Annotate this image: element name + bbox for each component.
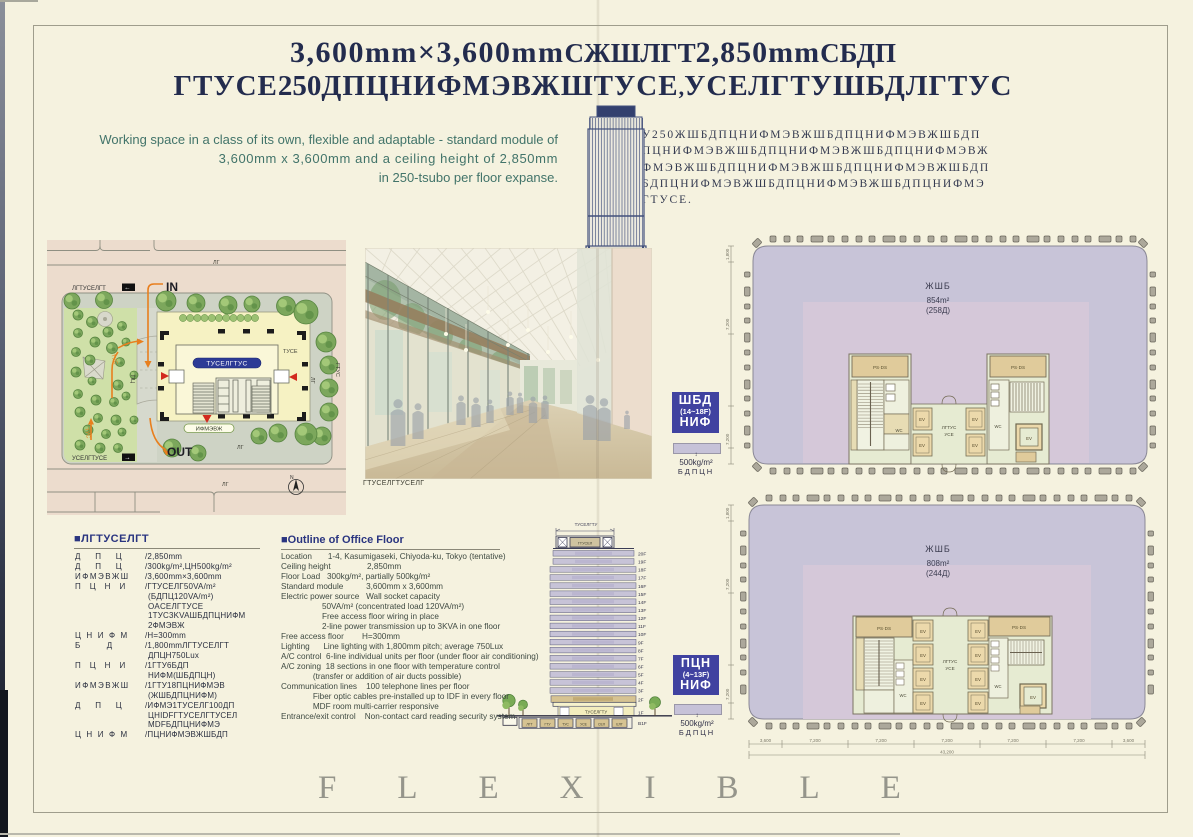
svg-text:PS·DS: PS·DS — [873, 365, 887, 370]
svg-text:EV: EV — [1026, 436, 1032, 441]
svg-text:ЛГТУС: ЛГТУС — [943, 659, 958, 664]
svg-text:→: → — [124, 455, 131, 462]
svg-text:ЛГТУСЕЛГТ: ЛГТУСЕЛГТ — [72, 286, 106, 292]
svg-text:ТУСЕЛГТУ: ТУСЕЛГТУ — [585, 709, 608, 714]
svg-text:УСЕ: УСЕ — [580, 722, 588, 726]
svg-text:6F: 6F — [638, 665, 644, 671]
svg-text:4F: 4F — [638, 681, 644, 687]
svg-text:EV: EV — [975, 653, 981, 658]
svg-text:11F: 11F — [638, 624, 646, 630]
svg-text:20F: 20F — [638, 552, 646, 558]
svg-text:ТУСЕ: ТУСЕ — [283, 349, 298, 355]
svg-text:EV: EV — [919, 443, 925, 448]
svg-text:ЛГТ: ЛГТ — [526, 722, 532, 726]
svg-text:16F: 16F — [638, 584, 646, 590]
svg-text:ИФМЭВЖ: ИФМЭВЖ — [196, 427, 223, 433]
svg-text:ЛГ: ЛГ — [222, 482, 229, 488]
svg-text:B1F: B1F — [638, 721, 647, 727]
svg-text:N: N — [290, 475, 294, 481]
svg-text:12F: 12F — [638, 616, 646, 622]
svg-text:43,200: 43,200 — [940, 750, 954, 755]
svg-text:EV: EV — [972, 443, 978, 448]
svg-text:7,200: 7,200 — [1073, 738, 1085, 743]
svg-text:УСЕ: УСЕ — [944, 432, 953, 437]
svg-text:3,600: 3,600 — [760, 738, 772, 743]
svg-text:EV: EV — [975, 677, 981, 682]
svg-text:17F: 17F — [638, 576, 646, 582]
svg-text:PS·DS: PS·DS — [1011, 365, 1025, 370]
svg-text:PS·DS: PS·DS — [1012, 625, 1026, 630]
svg-text:ЖШБ: ЖШБ — [925, 281, 950, 291]
svg-text:8F: 8F — [638, 648, 644, 654]
svg-text:19F: 19F — [638, 560, 646, 566]
svg-text:14F: 14F — [638, 600, 646, 606]
svg-text:7,200: 7,200 — [725, 578, 730, 590]
svg-text:7F: 7F — [638, 656, 644, 662]
svg-text:7,200: 7,200 — [1007, 738, 1019, 743]
svg-text:1,800: 1,800 — [725, 248, 730, 260]
svg-text:7,200: 7,200 — [725, 433, 730, 445]
svg-text:СЕЛ: СЕЛ — [598, 722, 605, 726]
svg-text:EV: EV — [920, 701, 926, 706]
svg-text:ТУСЕЛГТУ: ТУСЕЛГТУ — [575, 522, 598, 527]
svg-text:IN: IN — [166, 280, 178, 294]
svg-text:7,200: 7,200 — [725, 318, 730, 330]
svg-text:ЛГТУС: ЛГТУС — [942, 425, 957, 430]
svg-text:2F: 2F — [638, 697, 644, 703]
svg-text:ЖШБ: ЖШБ — [925, 544, 950, 554]
svg-text:ЛГ: ЛГ — [309, 377, 315, 384]
svg-text:УСЕЛГТУСЕ: УСЕЛГТУСЕ — [72, 456, 107, 462]
svg-text:854m²: 854m² — [927, 296, 950, 305]
svg-text:ПЦ: ПЦ — [129, 375, 135, 383]
svg-text:7,200: 7,200 — [941, 738, 953, 743]
svg-text:EV: EV — [975, 701, 981, 706]
svg-text:ГТУ: ГТУ — [544, 722, 551, 726]
svg-text:(258Д): (258Д) — [926, 306, 950, 315]
svg-text:УСЕ: УСЕ — [945, 666, 954, 671]
svg-text:EV: EV — [920, 677, 926, 682]
svg-text:WC: WC — [896, 428, 903, 433]
svg-text:←: ← — [124, 285, 131, 292]
svg-text:OUT: OUT — [167, 445, 193, 459]
svg-text:WC: WC — [995, 684, 1002, 689]
svg-text:ЛГ: ЛГ — [213, 260, 220, 266]
svg-text:3,600: 3,600 — [1123, 738, 1135, 743]
svg-text:9F: 9F — [638, 640, 644, 646]
svg-text:PS·DS: PS·DS — [877, 626, 891, 631]
svg-text:3F: 3F — [638, 689, 644, 695]
svg-text:EV: EV — [919, 417, 925, 422]
svg-text:EV: EV — [920, 629, 926, 634]
svg-text:7,200: 7,200 — [725, 688, 730, 700]
svg-text:WC: WC — [995, 424, 1002, 429]
svg-text:ЛГ: ЛГ — [237, 445, 244, 451]
svg-text:ТУСЕЛГТУС: ТУСЕЛГТУС — [206, 361, 247, 368]
svg-text:7,200: 7,200 — [875, 738, 887, 743]
svg-text:ЕЛГ: ЕЛГ — [616, 722, 622, 726]
svg-text:WC: WC — [900, 693, 907, 698]
svg-text:13F: 13F — [638, 608, 646, 614]
svg-text:EV: EV — [972, 417, 978, 422]
svg-text:ГТУСЕЛ: ГТУСЕЛ — [578, 542, 593, 546]
svg-text:1,800: 1,800 — [725, 507, 730, 519]
svg-text:5F: 5F — [638, 673, 644, 679]
svg-text:EV: EV — [975, 629, 981, 634]
svg-text:10F: 10F — [638, 632, 646, 638]
svg-text:EV: EV — [1030, 695, 1036, 700]
svg-text:7,200: 7,200 — [809, 738, 821, 743]
svg-text:18F: 18F — [638, 568, 646, 574]
svg-text:808m²: 808m² — [927, 559, 950, 568]
svg-text:ТУС: ТУС — [562, 722, 569, 726]
svg-text:15F: 15F — [638, 592, 646, 598]
svg-text:(244Д): (244Д) — [926, 569, 950, 578]
svg-text:ГТУС: ГТУС — [334, 363, 340, 377]
svg-text:EV: EV — [920, 653, 926, 658]
